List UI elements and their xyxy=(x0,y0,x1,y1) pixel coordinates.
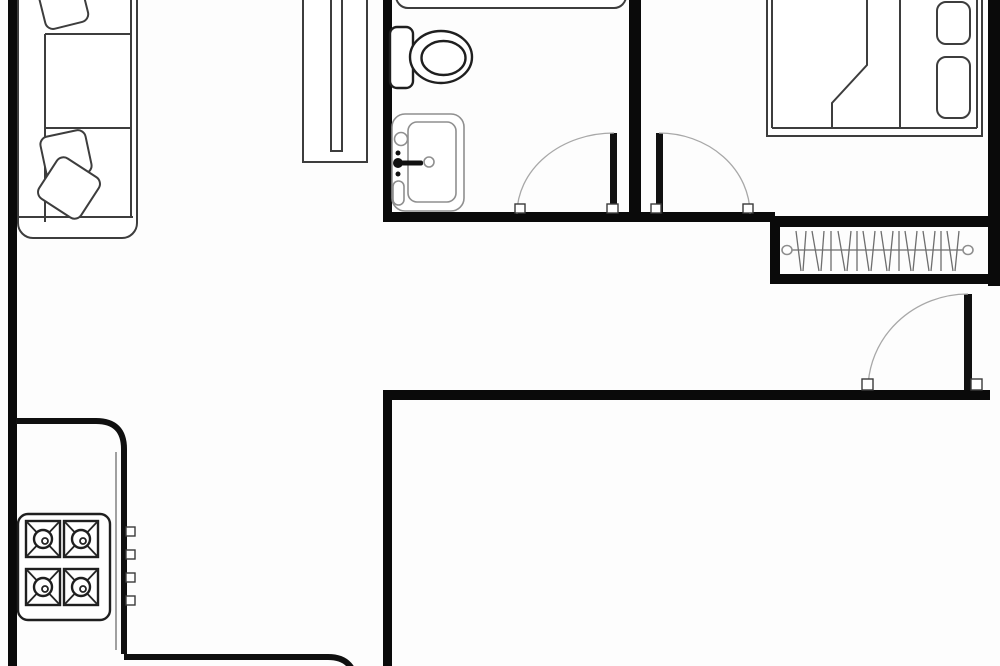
bedroom-door-arc xyxy=(659,133,750,214)
counter-knob xyxy=(126,596,135,605)
wall-right-exterior xyxy=(988,0,1000,286)
wall-bathroom-bedroom-divider xyxy=(629,0,641,222)
sink-drain xyxy=(424,157,434,167)
closet-rod-end-right xyxy=(963,246,973,255)
bed-pillow-top xyxy=(937,2,970,44)
bathroom-door-jamb-right xyxy=(607,204,618,213)
entry-door-jamb-left xyxy=(862,379,873,390)
hanger-line xyxy=(847,231,851,271)
counter-knob xyxy=(126,573,135,582)
hanger-line xyxy=(838,231,845,271)
hanger-line xyxy=(905,231,911,271)
bathroom-door-jamb-left xyxy=(515,204,525,213)
hanger-line xyxy=(803,231,806,271)
wall-bathroom-bedroom-bottom xyxy=(383,212,775,222)
hanger-line xyxy=(889,231,893,271)
sink-soap-dish xyxy=(393,181,404,205)
entry-door-arc xyxy=(868,294,968,390)
bathroom-door-arc xyxy=(517,133,614,214)
wall-closet-bottom xyxy=(770,274,992,284)
entry-door-jamb-right xyxy=(971,379,982,390)
wall-closet-left xyxy=(770,216,780,284)
wardrobe-cabinet-slot xyxy=(331,0,342,151)
sink-corner-hole xyxy=(395,133,408,146)
sink-dot-bottom xyxy=(396,172,401,177)
bathroom-door-leaf xyxy=(610,133,617,214)
hanger-line xyxy=(821,231,824,271)
hanger-line xyxy=(871,231,875,271)
sink-faucet-bar xyxy=(398,161,423,166)
wall-left-exterior xyxy=(8,0,17,666)
bed-pillow-bottom xyxy=(937,57,970,118)
counter-knob xyxy=(126,527,135,536)
bathtub xyxy=(396,0,626,8)
bedroom-door-jamb-right xyxy=(743,204,753,213)
bedroom-door-jamb-left xyxy=(651,204,661,213)
hanger-line xyxy=(796,231,801,271)
hanger-line xyxy=(913,231,917,271)
hanger-line xyxy=(931,231,935,271)
toilet-bowl-inner xyxy=(422,41,466,75)
hanger-line xyxy=(955,231,959,271)
wall-lower-left-vertical xyxy=(383,392,392,666)
hanger-line xyxy=(863,231,869,271)
counter-knob xyxy=(126,550,135,559)
floor-plan-page xyxy=(0,0,1000,666)
hanger-line xyxy=(923,231,929,271)
wall-closet-top xyxy=(770,216,1000,227)
hanger-line xyxy=(881,231,887,271)
kitchen-island-edge xyxy=(124,657,356,666)
hanger-line xyxy=(947,231,953,271)
entry-door-leaf xyxy=(964,294,972,390)
floor-plan-svg xyxy=(0,0,1000,666)
sink-dot-top xyxy=(396,151,401,156)
hanger-line xyxy=(812,231,819,271)
closet-rod-end-left xyxy=(782,246,792,255)
bedroom-door-leaf xyxy=(656,133,663,214)
wall-entry-bottom xyxy=(383,390,990,400)
